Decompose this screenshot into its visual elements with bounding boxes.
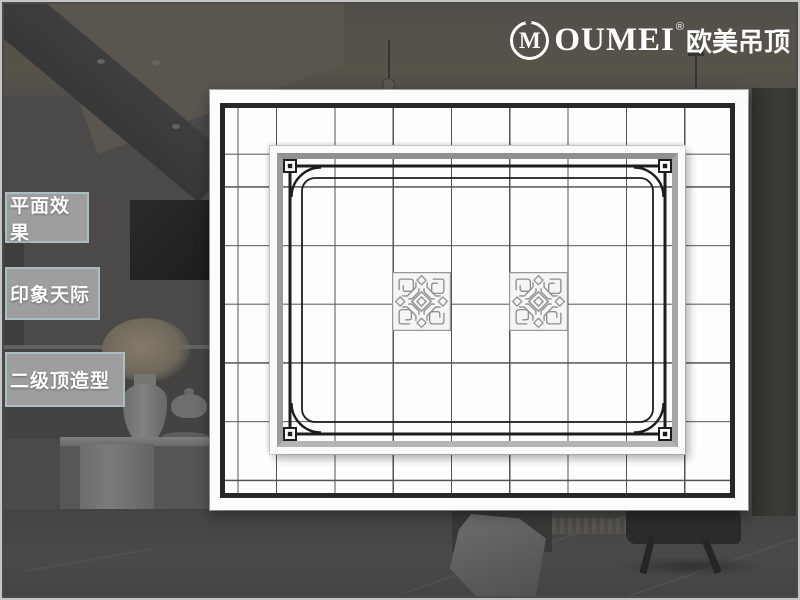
recessed-panel-gray-ring [277,153,678,447]
ornament-tile [509,272,568,331]
brand-m-icon-notch [525,18,532,25]
sidebar-item-plan-effect[interactable]: 平面效果 [5,192,89,243]
bg-teapot [171,394,207,418]
slide: 平面效果 印象天际 二级顶造型 M OUMEI ® 欧美吊顶 [0,0,800,600]
sidebar-item-label: 平面效果 [10,191,87,245]
bg-recessed-light [97,59,105,64]
brand-logo: M OUMEI ® 欧美吊顶 [510,19,790,61]
ornament-tile [392,272,451,331]
brand-symbol: M [519,29,541,52]
brand-name: OUMEI [554,22,675,59]
bg-wardrobe [752,88,796,516]
sidebar-item-label: 二级顶造型 [10,366,110,393]
bg-recessed-light [152,60,160,65]
sidebar-item-two-level-ceiling[interactable]: 二级顶造型 [5,352,125,407]
bg-pendant-cord [388,40,390,82]
bg-recessed-light [172,124,180,129]
brand-chinese-name: 欧美吊顶 [686,22,790,59]
bg-wall-tv [130,200,212,282]
registered-mark: ® [676,21,684,33]
sidebar-item-impression-sky[interactable]: 印象天际 [5,267,100,320]
sidebar-item-label: 印象天际 [10,280,90,307]
brand-m-icon: M [510,21,549,60]
bg-chair-shadow [616,556,766,576]
ceiling-plan-panel [210,90,748,510]
